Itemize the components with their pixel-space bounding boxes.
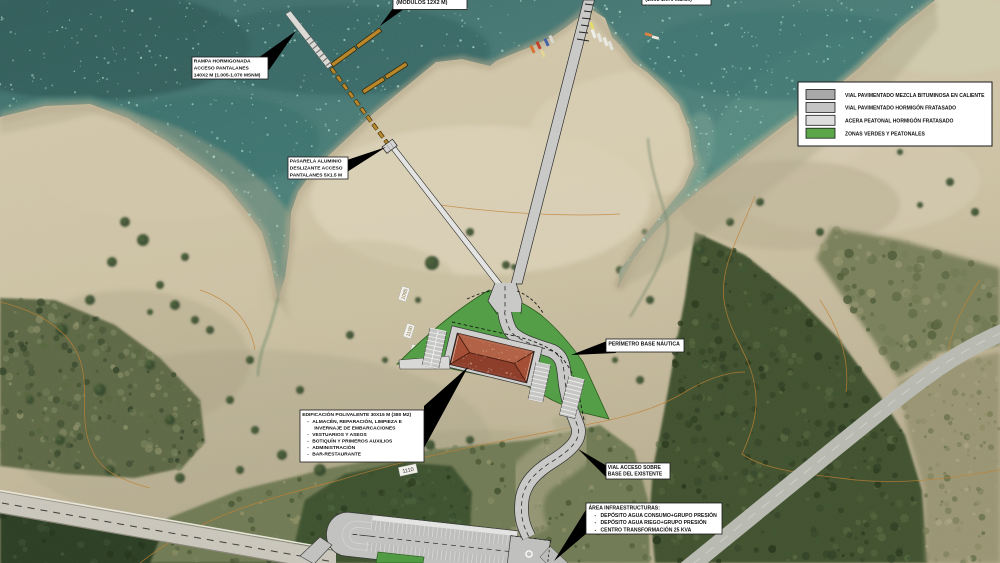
svg-text:BAR-RESTAURANTE: BAR-RESTAURANTE <box>312 452 362 458</box>
svg-text:ZONAS VERDES Y PEATONALES: ZONAS VERDES Y PEATONALES <box>845 132 925 138</box>
svg-text:RAMPA HORMIGONADA: RAMPA HORMIGONADA <box>194 59 251 65</box>
svg-text:CENTRO TRANSFORMACIÓN 25 KVA: CENTRO TRANSFORMACIÓN 25 KVA <box>601 525 692 533</box>
svg-text:VIAL PAVIMENTADO MEZCLA BITUMI: VIAL PAVIMENTADO MEZCLA BITUMINOSA EN CA… <box>845 93 985 99</box>
svg-text:ÁREA INFRAESTRUCTURAS:: ÁREA INFRAESTRUCTURAS: <box>589 505 661 512</box>
svg-text:(1.005-1.070 MSNM): (1.005-1.070 MSNM) <box>645 0 692 3</box>
svg-text:PASARELA ALUMINIO: PASARELA ALUMINIO <box>290 159 342 165</box>
svg-text:140X2 M (1.005-1.070 MSNM): 140X2 M (1.005-1.070 MSNM) <box>194 72 261 78</box>
svg-text:VIAL ACCESO SOBRE: VIAL ACCESO SOBRE <box>608 465 662 471</box>
svg-text:VESTUARIOS Y ASEOS: VESTUARIOS Y ASEOS <box>312 432 367 438</box>
svg-text:-: - <box>595 527 597 533</box>
svg-text:DESLIZANTE ACCESO: DESLIZANTE ACCESO <box>290 166 343 172</box>
svg-text:DEPÓSITO AGUA RIEGO+GRUPO PRES: DEPÓSITO AGUA RIEGO+GRUPO PRESIÓN <box>601 518 707 526</box>
svg-text:PERÍMETRO BASE NÁUTICA: PERÍMETRO BASE NÁUTICA <box>608 340 680 348</box>
svg-text:-: - <box>595 513 597 519</box>
svg-text:ACERA PEATONAL HORMIGÓN FRATAS: ACERA PEATONAL HORMIGÓN FRATASADO <box>845 117 953 125</box>
svg-text:DEPÓSITO AGUA CONSUMO+GRUPO PR: DEPÓSITO AGUA CONSUMO+GRUPO PRESIÓN <box>601 511 718 519</box>
svg-text:ACCESO PANTALANES: ACCESO PANTALANES <box>194 66 250 72</box>
svg-text:INVERNAJE DE EMBARCACIONES: INVERNAJE DE EMBARCACIONES <box>314 425 396 431</box>
svg-text:(MÓDULOS 12X2 M): (MÓDULOS 12X2 M) <box>396 0 447 6</box>
svg-text:-: - <box>595 520 597 526</box>
svg-text:PANTALANES 5X1.5 M: PANTALANES 5X1.5 M <box>290 172 342 178</box>
svg-text:VIAL PAVIMENTADO HORMIGÓN FRAT: VIAL PAVIMENTADO HORMIGÓN FRATASADO <box>845 104 956 112</box>
svg-text:BASE DEL EXISTENTE: BASE DEL EXISTENTE <box>608 472 663 478</box>
